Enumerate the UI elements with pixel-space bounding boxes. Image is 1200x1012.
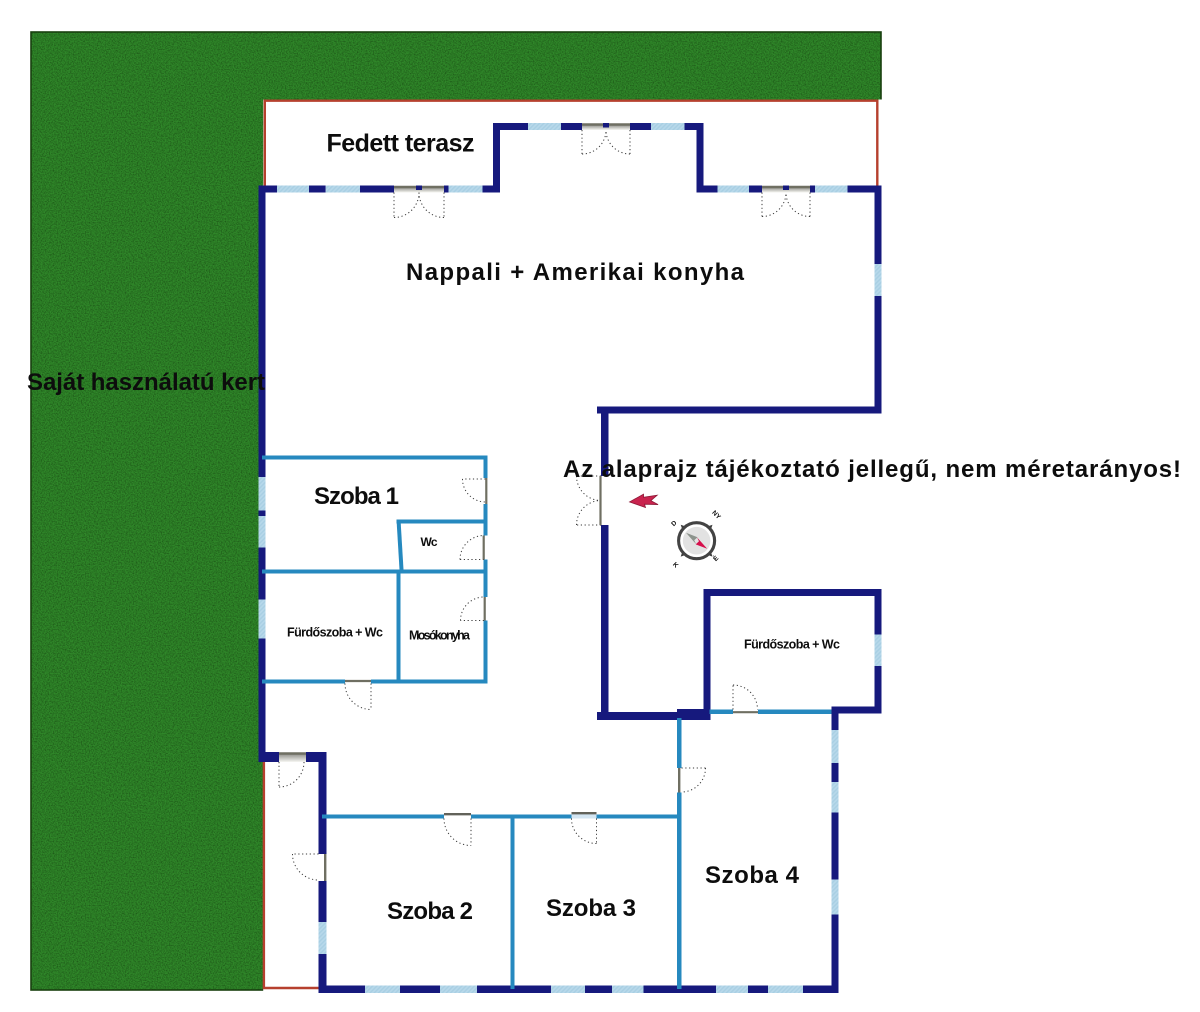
- svg-text:Saját használatú kert: Saját használatú kert: [27, 369, 265, 396]
- svg-text:Nappali + Amerikai konyha: Nappali + Amerikai konyha: [406, 259, 745, 286]
- svg-text:Fürdőszoba + Wc: Fürdőszoba + Wc: [744, 638, 840, 652]
- svg-text:Szoba 1: Szoba 1: [314, 483, 399, 510]
- svg-text:Az alaprajz tájékoztató jelleg: Az alaprajz tájékoztató jellegű, nem mér…: [563, 456, 1181, 483]
- svg-text:Szoba 4: Szoba 4: [705, 862, 800, 889]
- svg-text:Mosókonyha: Mosókonyha: [409, 629, 471, 643]
- svg-text:Fedett terasz: Fedett terasz: [327, 130, 475, 158]
- svg-text:Szoba 2: Szoba 2: [387, 898, 473, 925]
- svg-text:Szoba 3: Szoba 3: [546, 895, 636, 922]
- svg-text:Wc: Wc: [421, 535, 438, 549]
- svg-text:Fürdőszoba + Wc: Fürdőszoba + Wc: [287, 626, 383, 640]
